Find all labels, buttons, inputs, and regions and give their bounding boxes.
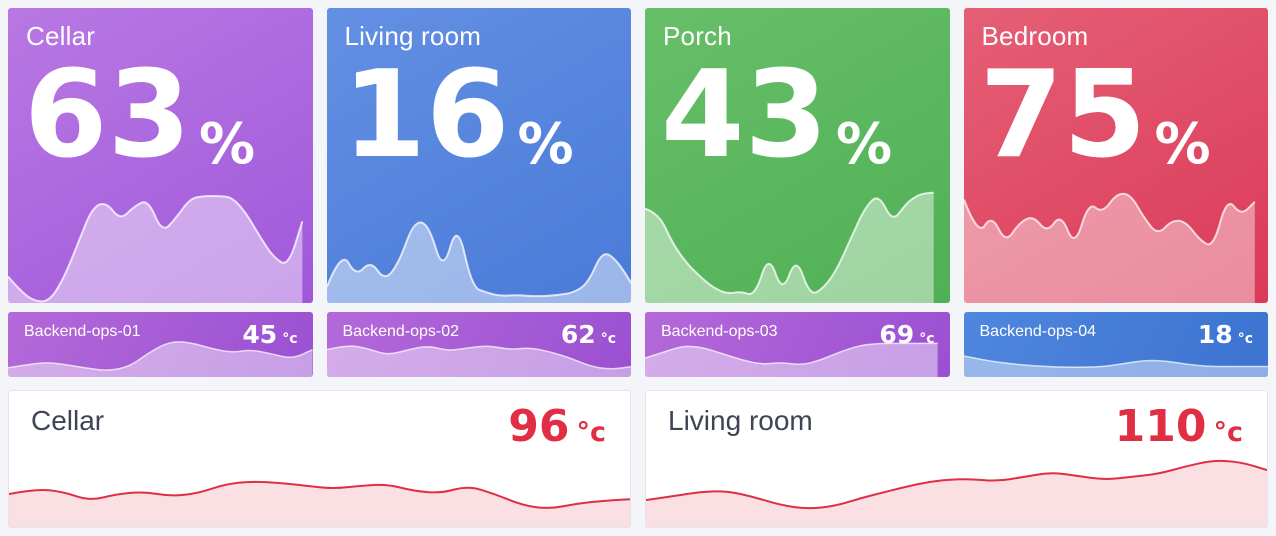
top-row: Cellar 63 % Living room 16 % Porch 43 % [8,8,1268,303]
sparkline [645,188,950,303]
stat-number: 75 [980,56,1147,176]
stat-value: 69 °c [879,322,934,347]
panel-backend-ops-02: Backend-ops-02 62 °c [327,312,632,377]
stat-number: 43 [661,56,828,176]
sparkline-svg [9,452,630,527]
stat-unit: °c [282,331,297,347]
stat-number: 16 [343,56,510,176]
stat-unit: % [518,112,574,177]
sparkline-svg [8,188,313,303]
stat-value: 110 °c [1115,405,1243,449]
sparkline [8,188,313,303]
stat-value: 62 °c [561,322,616,347]
stat-unit: % [1155,112,1211,177]
stat-unit: °c [1213,417,1243,448]
stat-number: 110 [1115,405,1207,449]
panel-cellar-humidity: Cellar 63 % [8,8,313,303]
stat-number: 18 [1198,322,1233,347]
panel-porch-humidity: Porch 43 % [645,8,950,303]
sparkline-svg [646,452,1267,527]
stat-value: 63 % [8,56,313,176]
panel-living-room-humidity: Living room 16 % [327,8,632,303]
sparkline [646,452,1267,527]
panel-backend-ops-01: Backend-ops-01 45 °c [8,312,313,377]
stat-value: 18 °c [1198,322,1253,347]
stat-unit: °c [1238,331,1253,347]
stat-number: 62 [561,322,596,347]
stat-value: 75 % [964,56,1269,176]
stat-value: 43 % [645,56,950,176]
sparkline-svg [964,188,1269,303]
stat-unit: °c [576,417,606,448]
sparkline-svg [645,188,950,303]
stat-value: 45 °c [242,322,297,347]
stat-unit: % [836,112,892,177]
stat-number: 63 [24,56,191,176]
sparkline [9,452,630,527]
stat-number: 45 [242,322,277,347]
stat-value: 16 % [327,56,632,176]
sparkline [964,188,1269,303]
stat-value: 96 °c [508,405,606,449]
stat-unit: °c [919,331,934,347]
stat-unit: % [199,112,255,177]
sparkline [327,188,632,303]
panel-living-room-temperature: Living room 110 °c [645,390,1268,528]
stat-number: 96 [508,405,569,449]
mini-row: Backend-ops-01 45 °c Backend-ops-02 62 °… [8,312,1268,377]
sparkline-svg [327,188,632,303]
stat-number: 69 [879,322,914,347]
panel-backend-ops-04: Backend-ops-04 18 °c [964,312,1269,377]
panel-bedroom-humidity: Bedroom 75 % [964,8,1269,303]
panel-cellar-temperature: Cellar 96 °c [8,390,631,528]
bottom-row: Cellar 96 °c Living room 110 °c [8,390,1268,528]
stat-unit: °c [601,331,616,347]
panel-backend-ops-03: Backend-ops-03 69 °c [645,312,950,377]
